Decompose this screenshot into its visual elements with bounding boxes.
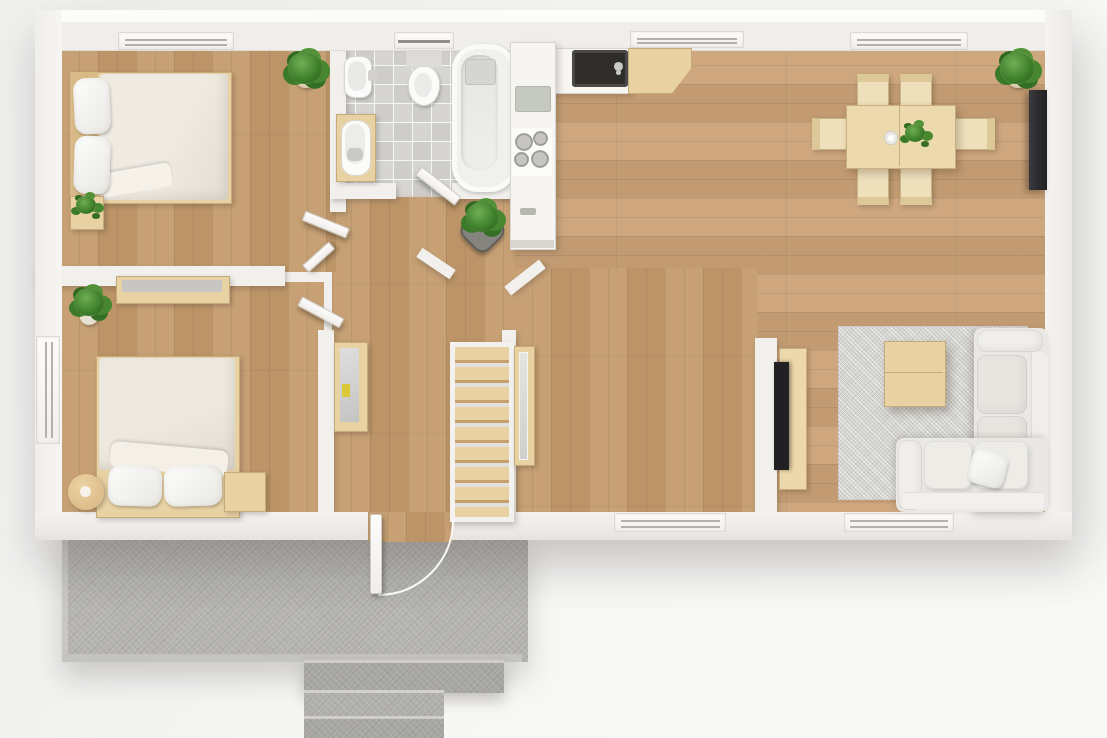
sofa-armrest-top — [977, 330, 1043, 352]
washbasin-inner — [348, 61, 366, 91]
cup — [884, 131, 898, 145]
dining-corner-plant — [1000, 52, 1034, 84]
hall-plant — [466, 202, 498, 232]
window-glass — [621, 526, 720, 528]
dining-chair-right — [950, 118, 995, 150]
dining-table — [846, 105, 956, 169]
tv-screen-living — [774, 362, 789, 470]
entry-step-2 — [304, 690, 444, 719]
window-glass — [637, 38, 738, 40]
exterior-wall-left — [35, 10, 62, 540]
coffee-table — [884, 341, 946, 407]
kitchen-faucet — [614, 62, 623, 71]
corridor-floor — [513, 268, 757, 514]
window-corridor-bottom — [614, 513, 726, 532]
wall-bedroom2-right — [318, 330, 334, 512]
window-glass — [637, 42, 738, 44]
burner — [514, 152, 529, 167]
cutting-board — [515, 86, 551, 112]
staircase — [450, 342, 514, 522]
sofa-seat-strip — [902, 492, 1044, 509]
window-glass — [125, 44, 228, 46]
bedroom2-plant — [74, 288, 104, 316]
bed2-pillow-left — [107, 465, 162, 507]
window-glass — [621, 520, 720, 522]
entry-step-3 — [304, 716, 444, 738]
column-base-trim — [510, 240, 554, 248]
patio — [62, 536, 528, 662]
sofa-seat-cushion — [977, 355, 1027, 414]
exterior-wall-right — [1045, 10, 1072, 540]
floor-plan-render — [0, 0, 1107, 738]
window-bathroom-top — [394, 32, 454, 49]
bed2-pillow-right — [163, 465, 222, 507]
sofa-back-cushion — [924, 441, 972, 489]
bed2-nightstand — [224, 472, 266, 512]
front-door-leaf — [370, 514, 382, 594]
wall-bathroom-bottom-left — [330, 183, 396, 199]
round-stool-dot — [80, 486, 91, 497]
mirror-cabinet-accent — [342, 384, 350, 397]
nightstand-plant — [76, 196, 96, 214]
table-plant — [905, 124, 925, 142]
window-glass — [850, 526, 947, 528]
burner — [533, 131, 548, 146]
burner — [531, 150, 549, 168]
window-glass — [45, 342, 47, 437]
bedroom1-plant — [288, 52, 322, 84]
window-dining-top — [850, 32, 968, 50]
window-kitchen-top — [630, 31, 744, 48]
window-bedroom2-left — [36, 336, 60, 444]
wall-shelf-top — [122, 280, 222, 292]
tv-screen-dining — [1029, 90, 1047, 190]
coffee-table-seam — [885, 372, 943, 373]
window-glass — [850, 520, 947, 522]
bathtub-fixture-panel — [465, 59, 496, 85]
entry-step-1 — [304, 660, 504, 693]
window-glass — [51, 342, 53, 437]
vanity-cushion — [347, 148, 363, 161]
bed1-pillow-bottom — [73, 135, 111, 194]
window-bedroom1-top — [118, 32, 234, 50]
bed1-pillow-top — [73, 77, 112, 135]
window-glass — [125, 39, 228, 41]
window-living-bottom — [844, 513, 954, 532]
drawer-handle — [520, 208, 536, 215]
window-glass — [398, 40, 450, 43]
dining-table-seam — [899, 106, 900, 166]
wardrobe-mirror-strip — [519, 352, 528, 460]
burner — [515, 133, 533, 151]
window-glass — [857, 39, 961, 41]
window-glass — [857, 44, 961, 46]
toilet-seat-inner — [414, 73, 432, 97]
washbasin-faucet — [368, 70, 377, 81]
